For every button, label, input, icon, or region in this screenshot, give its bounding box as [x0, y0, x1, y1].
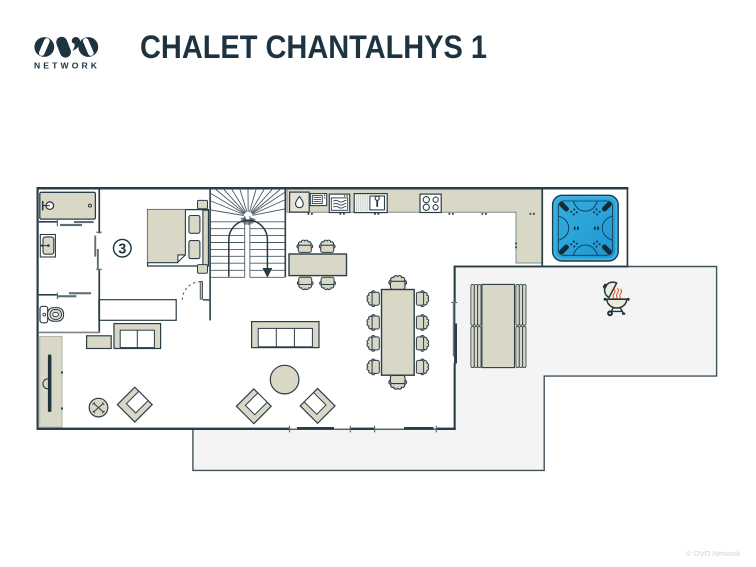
svg-text:CHALET CHANTALHYS 1: CHALET CHANTALHYS 1 — [140, 29, 487, 65]
svg-text:3: 3 — [118, 241, 126, 257]
svg-text:NETWORK: NETWORK — [34, 61, 100, 71]
svg-text:© OVO Network: © OVO Network — [686, 549, 740, 558]
